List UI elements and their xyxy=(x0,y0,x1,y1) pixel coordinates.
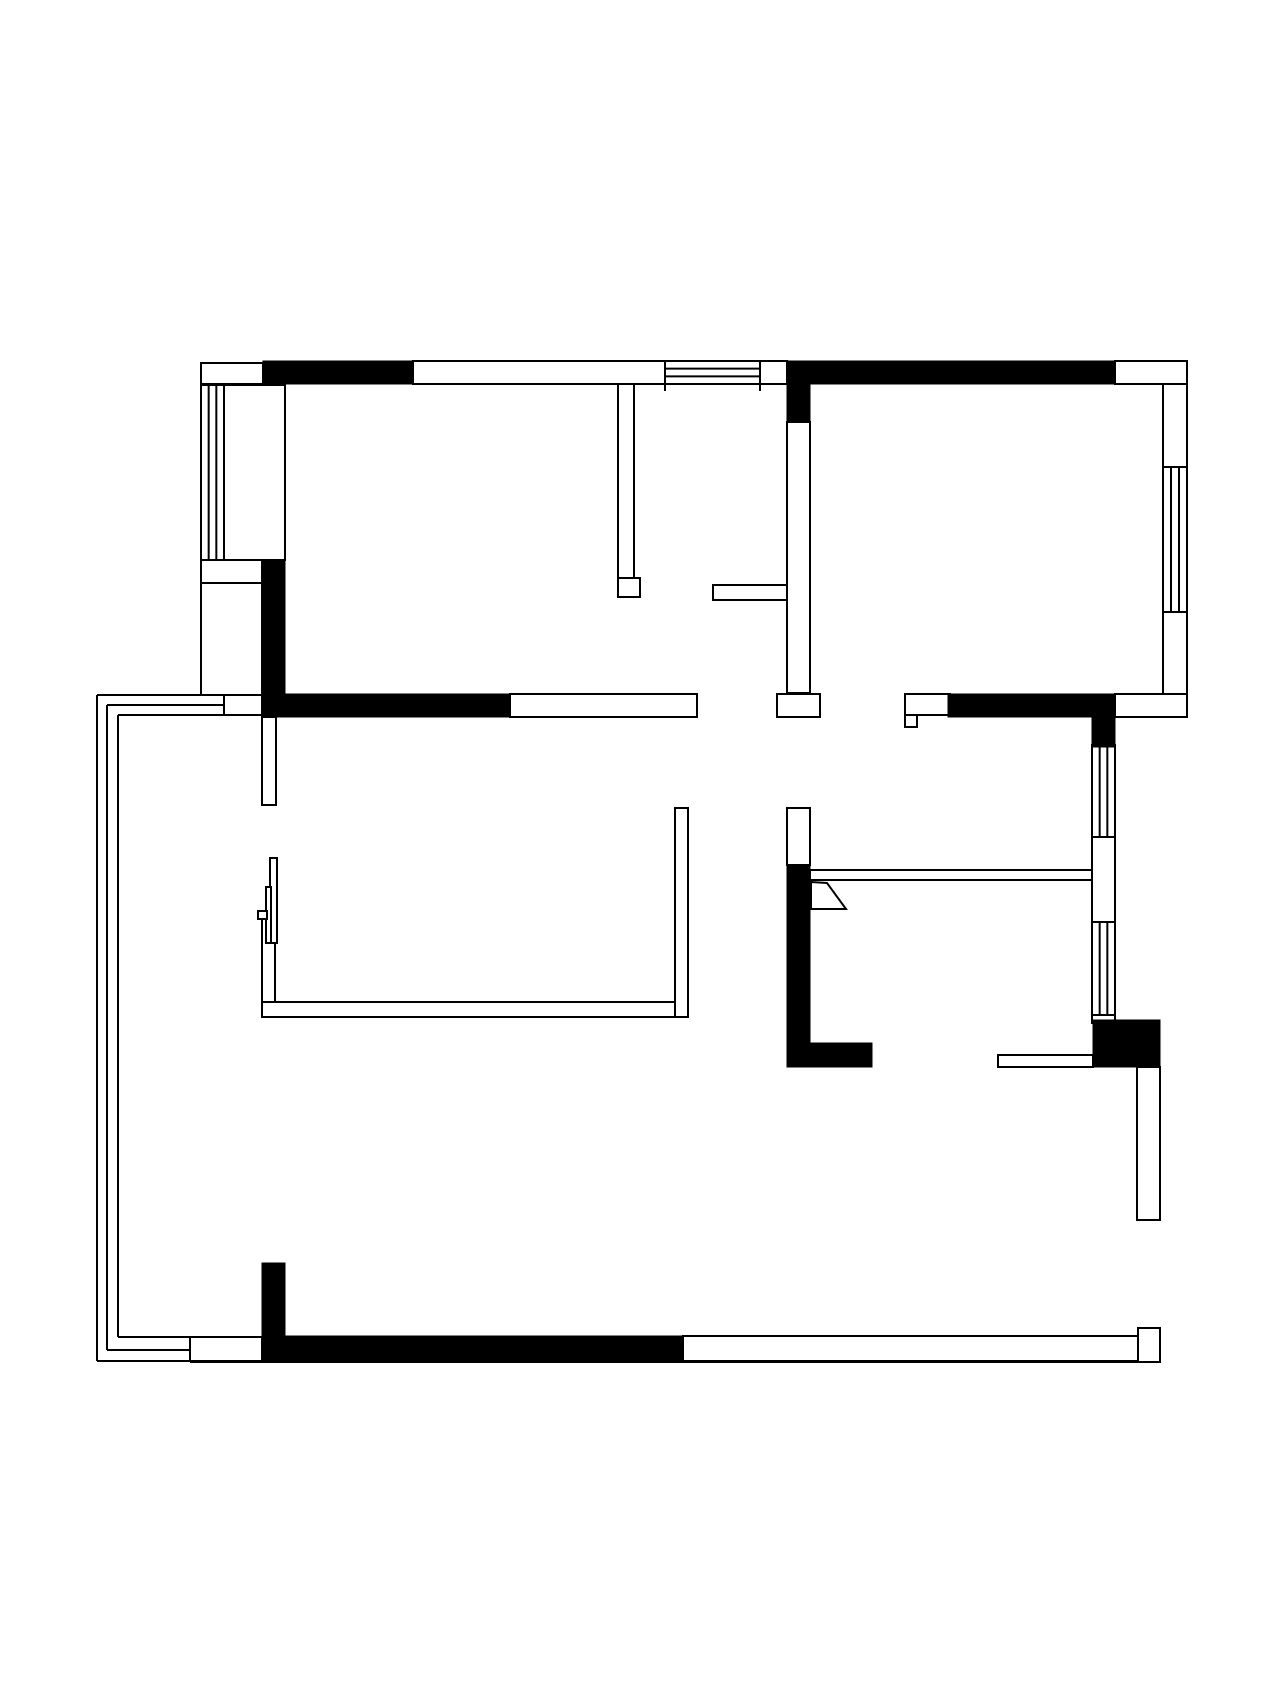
solid-wall xyxy=(787,865,810,1067)
wall-segment xyxy=(713,585,788,600)
wall-segment xyxy=(760,361,787,384)
wall-segment xyxy=(777,694,820,717)
wall-segment xyxy=(190,1337,262,1361)
window xyxy=(665,361,760,384)
floor-plan-page xyxy=(0,0,1280,1707)
wall-segment xyxy=(905,694,950,715)
wall-segment xyxy=(1115,361,1187,384)
wall-segment xyxy=(1115,694,1187,717)
wall-segment xyxy=(510,694,697,717)
wall-segment xyxy=(1137,1067,1160,1220)
solid-wall xyxy=(787,361,1115,384)
solid-wall xyxy=(948,694,1115,717)
wall-segment xyxy=(262,717,276,805)
wall-segment xyxy=(413,361,665,384)
wall-segment xyxy=(683,1336,1138,1361)
solid-wall xyxy=(262,1263,285,1336)
solid-wall xyxy=(1092,717,1115,747)
wall-segment xyxy=(1163,384,1187,467)
window xyxy=(1092,745,1115,837)
door-leaf xyxy=(811,882,846,909)
wall-segment xyxy=(201,560,262,583)
wall-segment xyxy=(787,808,810,865)
wall-segment xyxy=(787,422,810,693)
wall-segment xyxy=(1092,837,1115,922)
solid-wall xyxy=(263,361,413,384)
furniture-outline xyxy=(675,808,688,1017)
wall-segment xyxy=(618,384,634,578)
wall-segment xyxy=(201,583,262,695)
window xyxy=(1092,922,1115,1015)
furniture-outline xyxy=(258,911,267,919)
window xyxy=(201,385,224,560)
wall-segment xyxy=(224,385,285,560)
solid-wall xyxy=(810,1043,872,1067)
solid-wall xyxy=(787,384,810,422)
wall-segment xyxy=(201,363,263,384)
solid-wall xyxy=(1093,1020,1160,1067)
wall-segment xyxy=(998,1055,1093,1067)
furniture-outline xyxy=(262,1002,688,1017)
wall-segment xyxy=(905,715,917,727)
glass-partition xyxy=(810,870,1092,880)
solid-wall xyxy=(262,1336,683,1361)
solid-wall xyxy=(262,694,510,717)
solid-wall xyxy=(262,560,285,717)
wall-segment xyxy=(224,695,262,715)
floor-plan xyxy=(0,0,1280,1707)
window xyxy=(1163,467,1187,612)
wall-segment xyxy=(1138,1328,1160,1362)
wall-segment xyxy=(618,578,640,597)
